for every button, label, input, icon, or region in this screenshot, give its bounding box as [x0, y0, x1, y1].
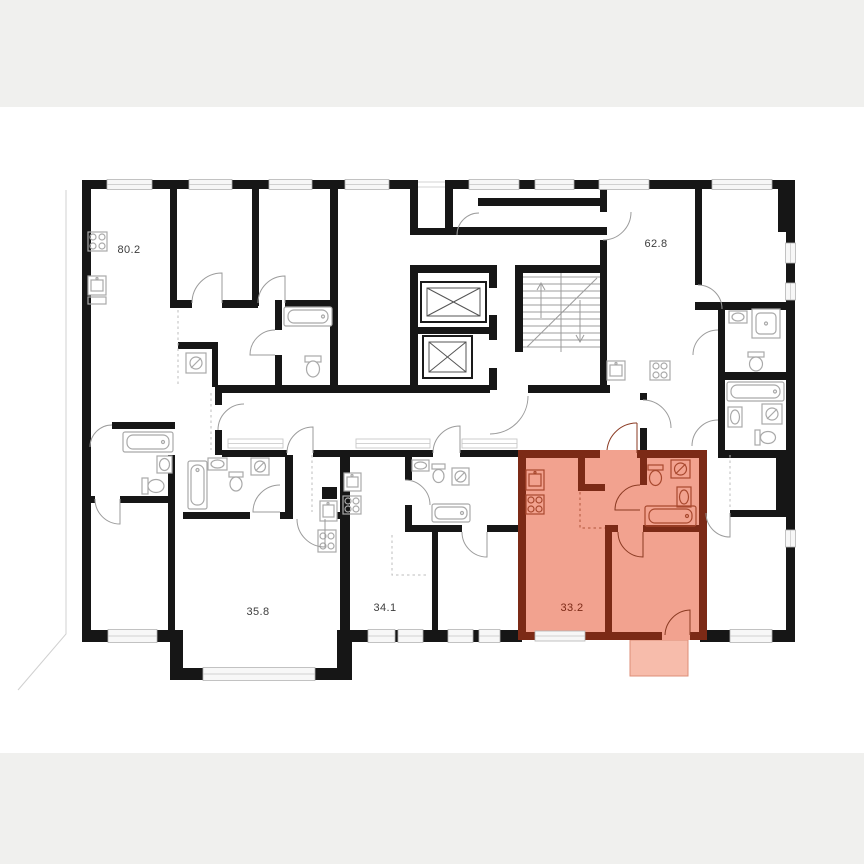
- toilet-icon: [748, 352, 764, 371]
- window-icon: [108, 630, 157, 643]
- toilet-icon: [432, 464, 445, 483]
- shower-icon: [752, 309, 780, 338]
- bathtub-icon: [432, 504, 470, 522]
- toilet-icon: [755, 430, 776, 445]
- window-icon: [786, 283, 796, 300]
- elevator-icon: [421, 282, 486, 322]
- window-icon: [712, 180, 772, 190]
- stove-icon: [650, 361, 670, 380]
- floor-plan-screenshot: 80.2 62.8 35.8 34.1 33.2: [0, 0, 864, 864]
- washing-machine-icon: [251, 458, 269, 475]
- window-icon: [469, 180, 519, 190]
- toilet-icon: [229, 472, 243, 491]
- kitchen-sink-icon: [320, 501, 337, 521]
- entrance-door: [418, 179, 445, 190]
- area-label-80-2: 80.2: [117, 244, 140, 256]
- bottom-letterbox: [0, 753, 864, 864]
- window-icon: [203, 668, 315, 681]
- window-icon: [107, 180, 152, 190]
- window-icon: [730, 630, 772, 643]
- stairs-icon: [523, 273, 600, 352]
- area-label-33-2[interactable]: 33.2: [560, 602, 583, 614]
- bathroom-sink-icon: [208, 458, 227, 470]
- bathroom-sink-icon: [729, 311, 747, 323]
- bathtub-icon: [188, 461, 207, 509]
- area-label-35-8: 35.8: [246, 606, 269, 618]
- bathroom-sink-icon: [157, 456, 172, 473]
- window-icon: [535, 180, 574, 190]
- selected-apartment-33-2[interactable]: [518, 450, 707, 676]
- site-outline: [18, 190, 66, 690]
- window-icon: [599, 180, 649, 190]
- window-icon: [189, 180, 232, 190]
- elevator-icon: [423, 336, 472, 378]
- area-label-34-1: 34.1: [373, 602, 396, 614]
- window-icon: [398, 630, 423, 643]
- window-icon: [345, 180, 389, 190]
- window-icon: [368, 630, 395, 643]
- bathroom-sink-icon: [412, 460, 429, 471]
- washing-machine-icon: [452, 468, 469, 485]
- floor-plan-svg: 80.2 62.8 35.8 34.1 33.2: [0, 0, 864, 864]
- toilet-icon: [305, 356, 321, 377]
- window-icon: [786, 243, 796, 263]
- kitchen-sink-icon: [344, 473, 361, 491]
- stove-icon: [318, 530, 336, 552]
- wardrobe-outlines: [228, 439, 517, 448]
- top-letterbox: [0, 0, 864, 107]
- window-icon: [479, 630, 500, 643]
- area-label-62-8: 62.8: [644, 238, 667, 250]
- window-icon: [448, 630, 473, 643]
- bathtub-icon: [727, 382, 784, 401]
- washing-machine-icon: [186, 353, 206, 373]
- window-icon: [269, 180, 312, 190]
- bathroom-sink-icon: [728, 407, 742, 427]
- toilet-icon: [142, 478, 164, 494]
- window-icon: [786, 530, 796, 547]
- bathtub-icon: [284, 307, 332, 326]
- balcony[interactable]: [630, 640, 688, 676]
- washing-machine-icon: [762, 404, 782, 424]
- window-icon: [535, 631, 585, 641]
- bathtub-icon: [123, 432, 173, 452]
- kitchen-sink-icon: [607, 361, 625, 380]
